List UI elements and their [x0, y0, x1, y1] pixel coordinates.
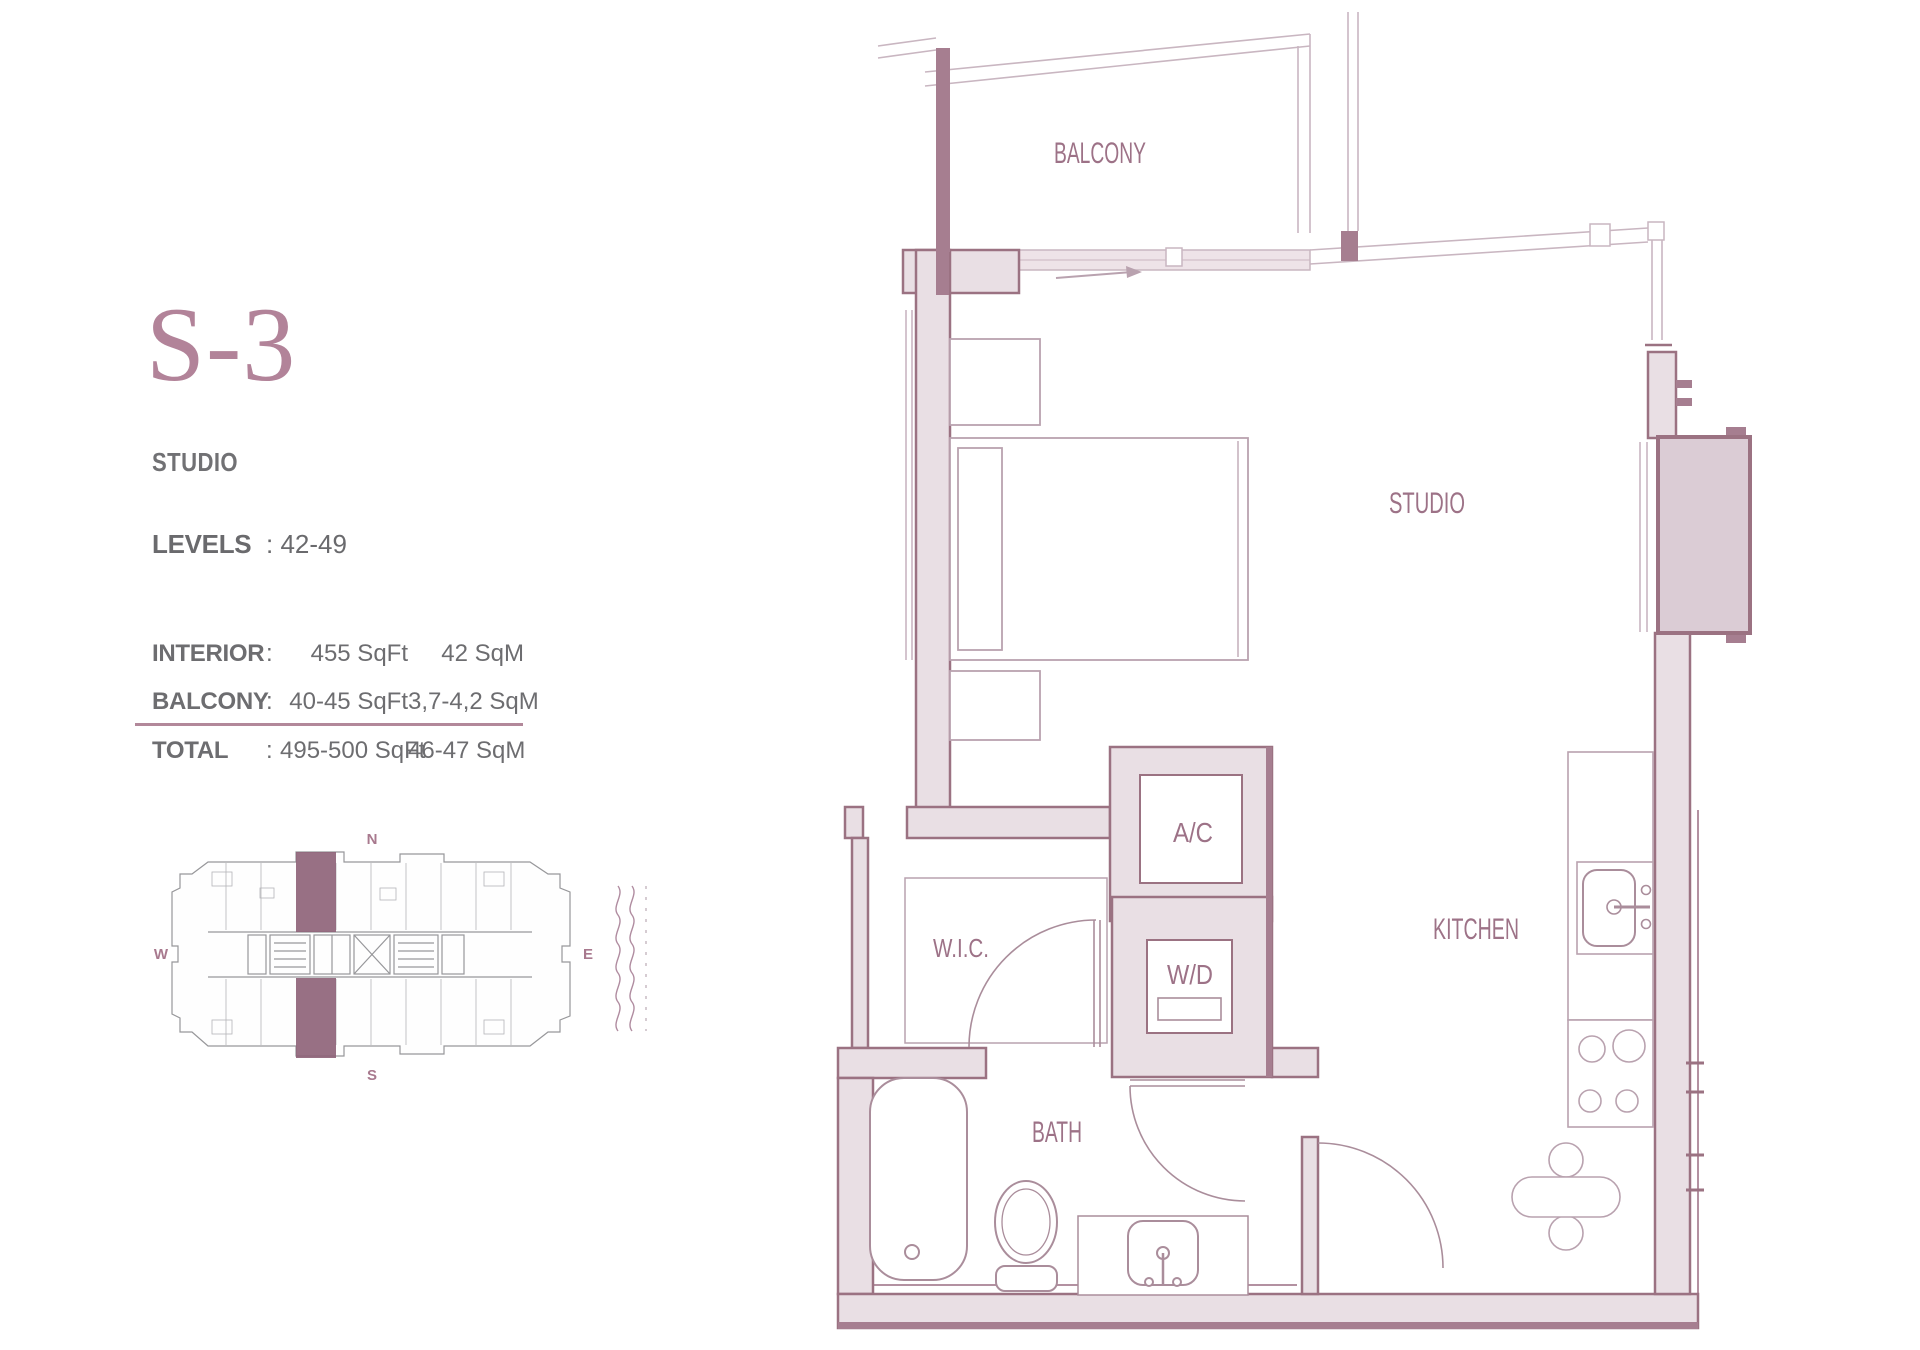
- burner: [1616, 1090, 1638, 1112]
- area-colon: :: [266, 737, 280, 765]
- balcony-sliding-door: [1018, 250, 1310, 278]
- table-divider-line: [135, 723, 523, 726]
- area-colon: :: [266, 640, 280, 668]
- compass-east: E: [583, 946, 593, 963]
- bath-label: BATH: [1032, 1116, 1082, 1149]
- dining-table: [1512, 1177, 1620, 1217]
- bed-group: [950, 339, 1248, 740]
- studio-label: STUDIO: [1389, 487, 1465, 520]
- nightstand: [950, 339, 1040, 425]
- area-label: BALCONY: [152, 688, 266, 716]
- compass-west: W: [154, 946, 169, 963]
- unit-code-title: S-3: [146, 292, 296, 398]
- unit-floorplan: BALCONY STUDIO KITCHEN A/C W.I.C. W/D BA…: [690, 0, 1920, 1350]
- washer-dryer-front: [1158, 998, 1221, 1020]
- area-label: TOTAL: [152, 737, 266, 765]
- area-row-balcony: BALCONY : 40-45 SqFt 3,7-4,2 SqM: [152, 688, 524, 716]
- nightstand: [950, 671, 1040, 740]
- wic-label: W.I.C.: [933, 933, 989, 963]
- levels-value: : 42-49: [266, 529, 347, 560]
- compass-north: N: [367, 831, 378, 848]
- area-sqft: 495-500 SqFt: [280, 737, 408, 765]
- highlighted-unit-north: [296, 852, 336, 932]
- compass-south: S: [367, 1067, 377, 1083]
- burner: [1613, 1030, 1645, 1062]
- area-sqm: 3,7-4,2 SqM: [408, 688, 524, 716]
- levels-label: LEVELS: [152, 529, 266, 560]
- area-label: INTERIOR: [152, 640, 266, 668]
- area-colon: :: [266, 688, 280, 716]
- wd-label: W/D: [1167, 959, 1213, 990]
- burner: [1579, 1090, 1601, 1112]
- ac-label: A/C: [1173, 817, 1213, 848]
- stool: [1549, 1216, 1583, 1250]
- bed-pillow: [958, 448, 1002, 650]
- stool: [1549, 1143, 1583, 1177]
- kitchen-group: [1512, 752, 1653, 1250]
- building-keyplan: N S W E: [150, 828, 650, 1083]
- area-sqft: 455 SqFt: [280, 640, 408, 668]
- area-sqm: 46-47 SqM: [408, 737, 524, 765]
- toilet-bowl: [995, 1181, 1057, 1263]
- floorplan-sheet: S-3 STUDIO LEVELS : 42-49 INTERIOR : 455…: [0, 0, 1920, 1350]
- balcony-label: BALCONY: [1054, 137, 1146, 170]
- shoreline-waves-icon: [616, 886, 634, 1031]
- levels-row: LEVELS : 42-49: [152, 529, 347, 560]
- hall-door: [1318, 1143, 1443, 1268]
- bath-door: [1130, 1080, 1245, 1201]
- unit-type-label: STUDIO: [152, 447, 238, 478]
- area-row-interior: INTERIOR : 455 SqFt 42 SqM: [152, 640, 524, 668]
- kitchen-label: KITCHEN: [1433, 913, 1519, 946]
- toilet-tank: [996, 1266, 1057, 1291]
- east-window-bay: [1658, 437, 1750, 633]
- area-sqm: 42 SqM: [408, 640, 524, 668]
- bathroom-group: [870, 1078, 1248, 1295]
- highlighted-unit-south: [296, 978, 336, 1058]
- burner: [1579, 1036, 1605, 1062]
- area-sqft: 40-45 SqFt: [280, 688, 408, 716]
- area-row-total: TOTAL : 495-500 SqFt 46-47 SqM: [152, 737, 524, 765]
